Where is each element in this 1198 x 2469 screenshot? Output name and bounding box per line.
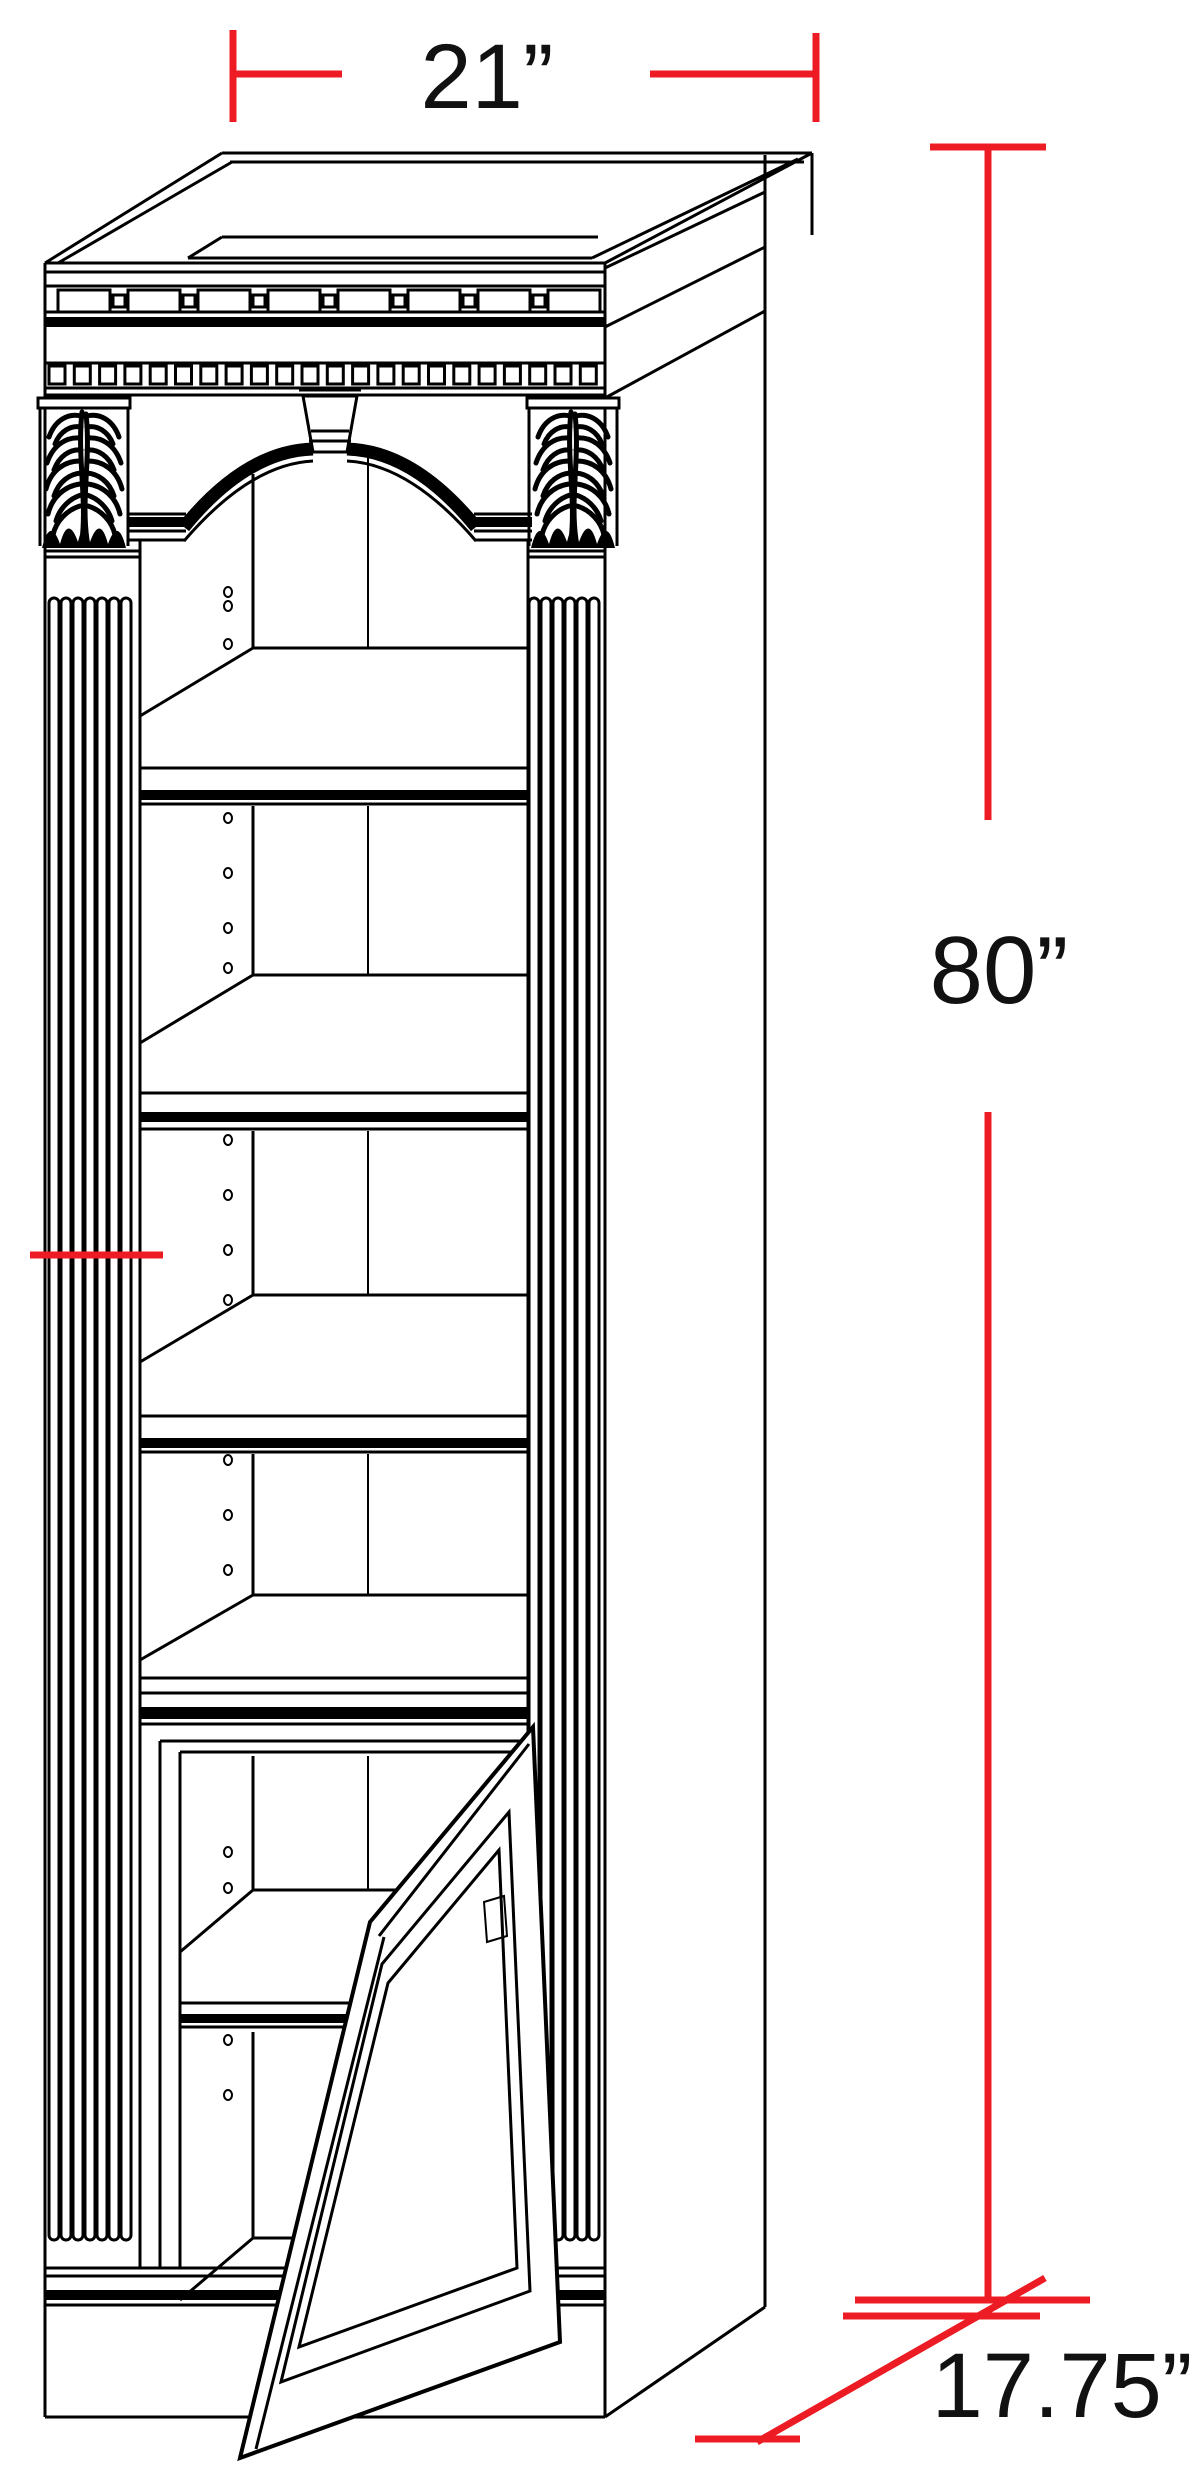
modillion-row bbox=[58, 290, 600, 312]
dimension-depth: 17.75” bbox=[932, 2335, 1193, 2437]
cabinet-drawing bbox=[38, 153, 812, 2458]
pilaster-left-flutes bbox=[49, 598, 131, 2240]
crown-molding bbox=[45, 272, 605, 395]
height-dimension-line bbox=[695, 147, 1090, 2442]
keystone bbox=[299, 390, 361, 452]
height-dimension-label: 80” bbox=[930, 917, 1069, 1024]
bay-2 bbox=[140, 806, 528, 1043]
bookcase-line-drawing: 21” 80” 17.75” bbox=[0, 0, 1198, 2469]
fixed-shelf-band bbox=[140, 1678, 528, 1724]
pilaster-caps bbox=[45, 551, 605, 557]
width-dimension-label: 21” bbox=[421, 26, 554, 128]
shelf-bays bbox=[140, 455, 528, 1724]
shelf-band-3 bbox=[140, 1416, 528, 1452]
dimension-width: 21” bbox=[233, 26, 816, 128]
depth-dimension-label: 17.75” bbox=[932, 2335, 1193, 2437]
open-door bbox=[240, 1727, 560, 2458]
shelf-band-1 bbox=[140, 768, 528, 804]
bay-3 bbox=[140, 1131, 528, 1362]
dentil-row bbox=[49, 366, 596, 384]
shelf-band-2 bbox=[140, 1093, 528, 1129]
arch bbox=[128, 390, 532, 541]
bay-4 bbox=[140, 1454, 528, 1660]
bay-1 bbox=[140, 455, 528, 716]
top-tray bbox=[45, 153, 812, 263]
side-panel-right bbox=[605, 155, 765, 2417]
dimension-drawing-page: 21” 80” 17.75” bbox=[0, 0, 1198, 2469]
corbel-left bbox=[38, 398, 130, 548]
dimension-height: 80” bbox=[695, 147, 1090, 2442]
